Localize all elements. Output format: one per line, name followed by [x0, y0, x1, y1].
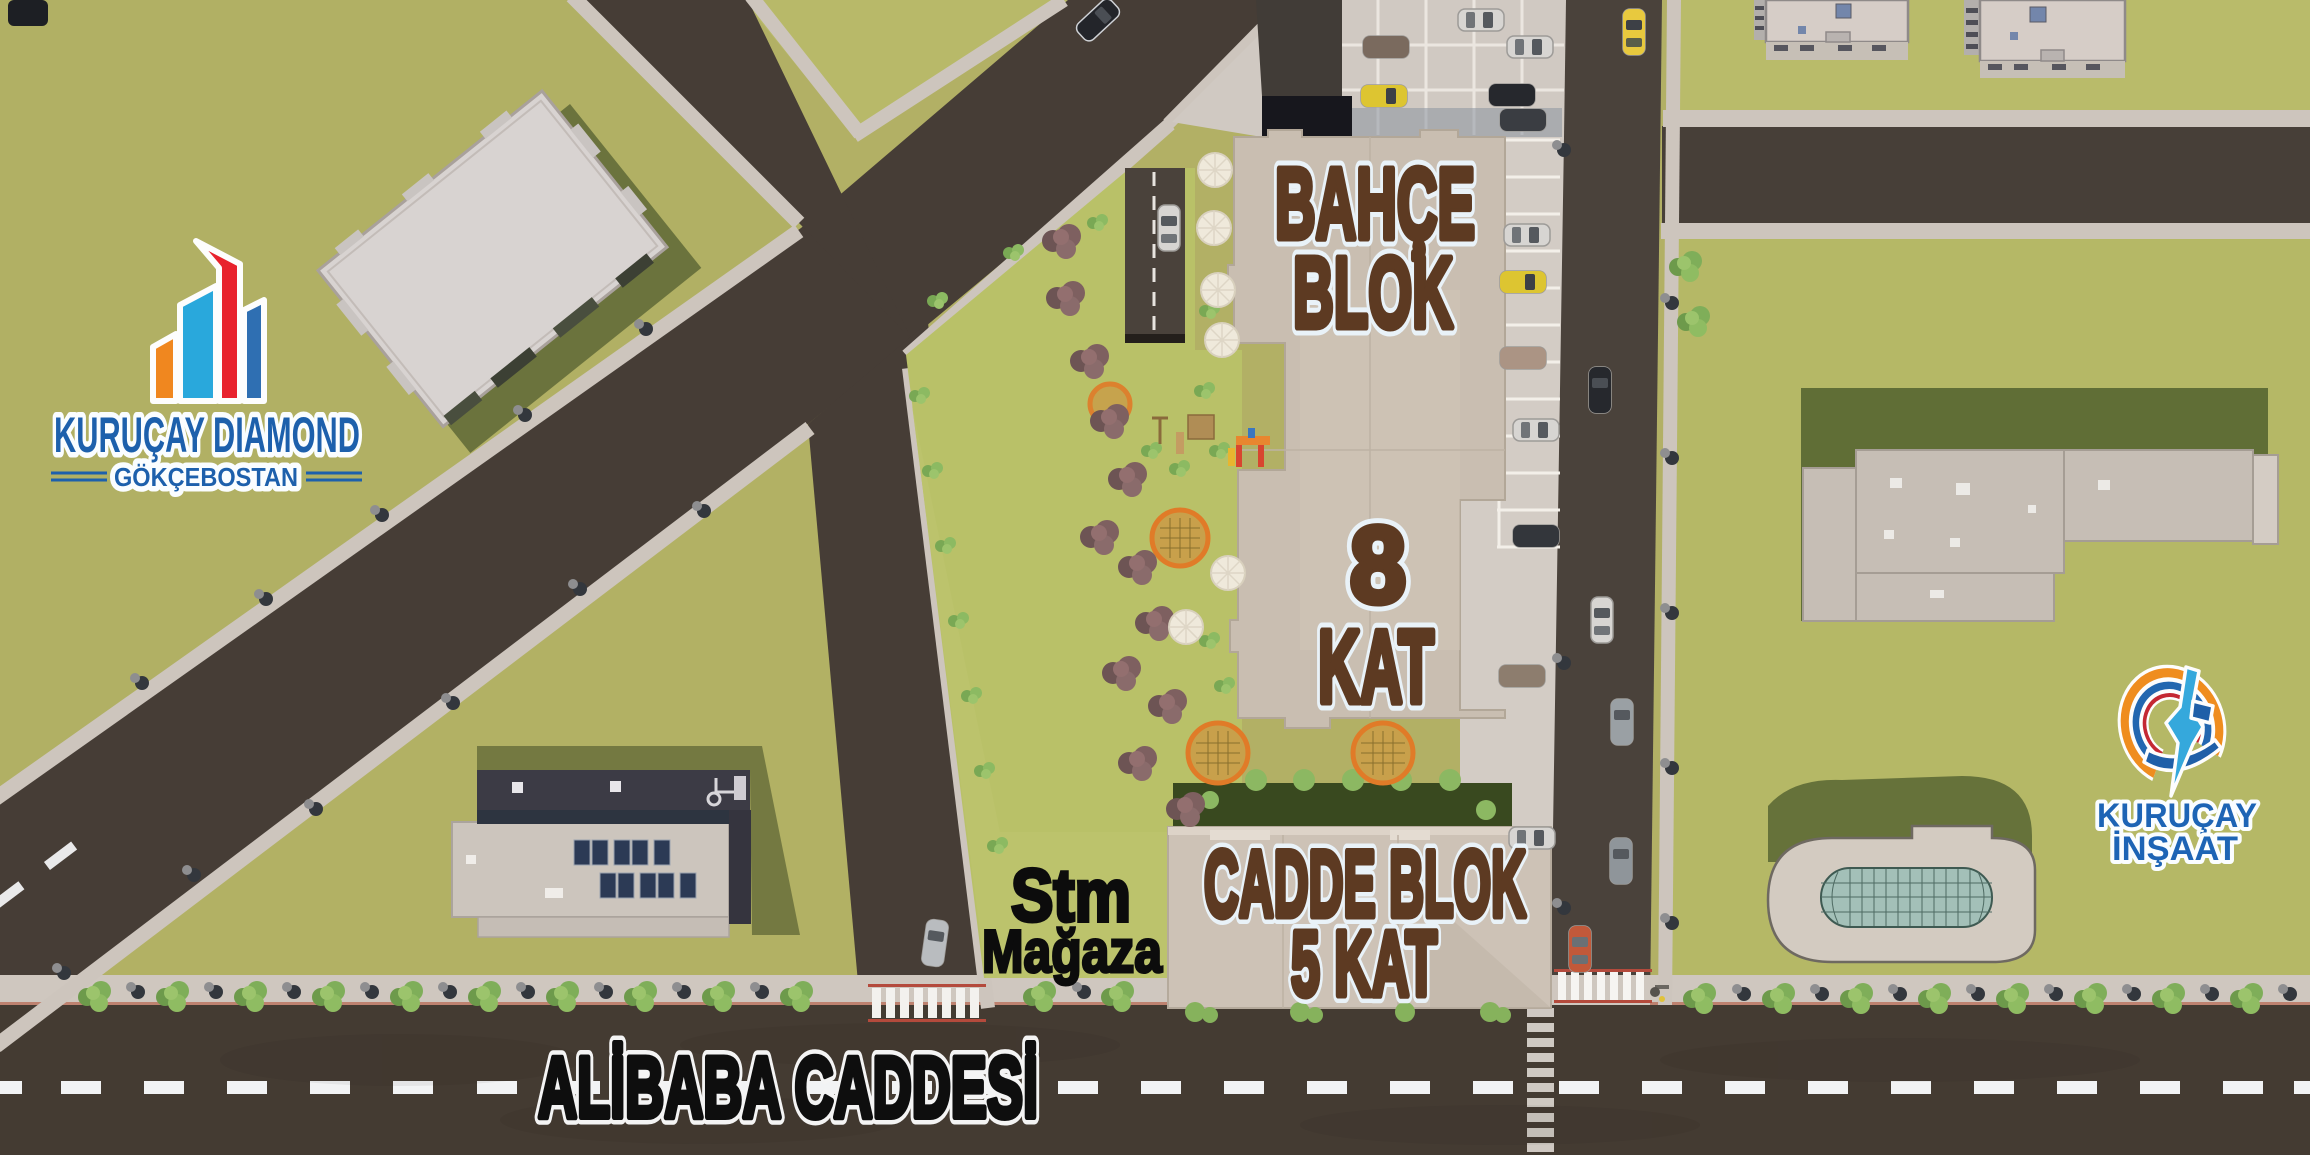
svg-text:8: 8 [1350, 504, 1406, 625]
svg-text:ALİBABA CADDESİ: ALİBABA CADDESİ [538, 1040, 1038, 1136]
svg-text:KURUÇAY DIAMOND: KURUÇAY DIAMOND [54, 407, 360, 463]
svg-text:KAT: KAT [1318, 609, 1434, 724]
svg-text:5 KAT: 5 KAT [1291, 913, 1437, 1015]
svg-text:BLOK: BLOK [1293, 237, 1453, 349]
svg-text:Mağaza: Mağaza [982, 918, 1163, 985]
svg-text:İNŞAAT: İNŞAAT [2112, 830, 2238, 868]
svg-text:GÖKÇEBOSTAN: GÖKÇEBOSTAN [114, 462, 298, 492]
